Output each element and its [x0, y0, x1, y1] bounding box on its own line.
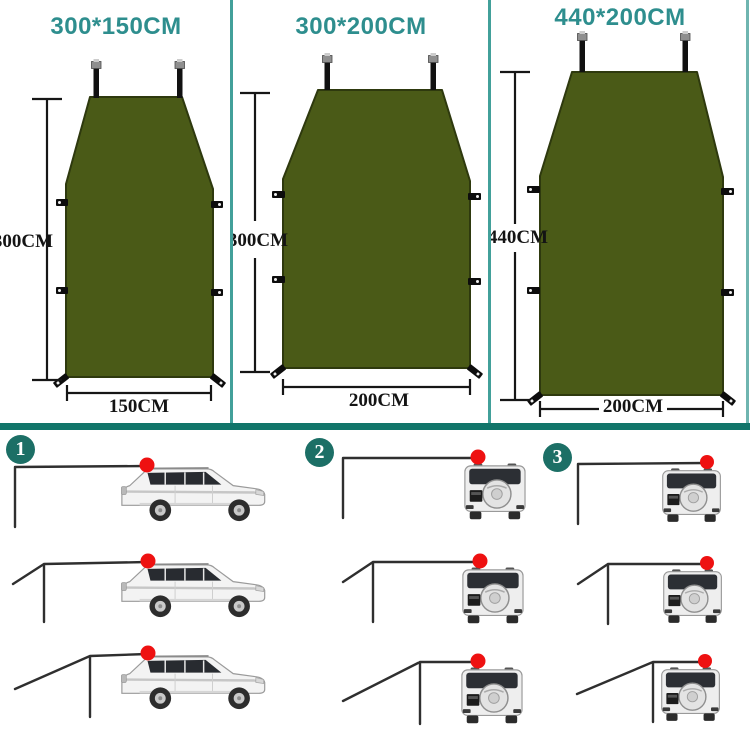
car-rear-view: [463, 567, 523, 623]
setup-scene-2a: [343, 450, 525, 520]
size-panel-440x200: 440*200CM: [490, 0, 750, 423]
tarp-product-infographic: 300*150CM: [0, 0, 750, 750]
size-panel-300x200: 300*200CM: [232, 0, 490, 423]
attachment-point-marker: [140, 458, 155, 473]
car-side-view: [121, 468, 264, 521]
attachment-point-marker: [141, 554, 156, 569]
tarp-shape: [283, 90, 470, 368]
width-dimension-label: 200CM: [349, 390, 409, 411]
setup-scene-2c: [343, 654, 522, 725]
car-side-view: [121, 656, 264, 709]
attachment-point-marker: [700, 455, 714, 469]
setup-scene-1a: [15, 458, 265, 528]
width-dimension-label: 200CM: [603, 396, 663, 417]
height-dimension-label: 300CM: [232, 230, 288, 251]
setup-scene-1c: [15, 646, 265, 718]
setup-scene-3b: [578, 556, 721, 624]
attachment-point-marker: [471, 654, 486, 669]
attachment-point-marker: [698, 654, 712, 668]
right-border-line: [746, 0, 749, 423]
setup-scenes-illustration: [0, 423, 750, 750]
car-side-view: [121, 564, 264, 617]
tent-pole-icon: [578, 31, 588, 72]
tent-pole-icon: [323, 53, 333, 90]
width-dimension-label: 150CM: [109, 396, 169, 417]
setup-scene-3a: [578, 455, 720, 524]
tent-pole-icon: [681, 31, 691, 72]
tent-pole-icon: [429, 53, 439, 90]
attachment-point-marker: [700, 556, 714, 570]
setup-scene-1b: [13, 554, 265, 623]
car-rear-view: [465, 463, 525, 519]
tarp-diagram-440x200: 440CM 200CM: [490, 0, 750, 423]
height-dimension-label: 300CM: [0, 231, 53, 252]
tent-pole-icon: [175, 59, 185, 98]
tent-pole-icon: [92, 59, 102, 98]
panel-divider: [488, 0, 491, 423]
car-rear-view: [462, 667, 522, 723]
height-dimension-label: 440CM: [490, 227, 548, 248]
attachment-point-marker: [473, 554, 488, 569]
attachment-point-marker: [141, 646, 156, 661]
tarp-diagram-300x150: 300CM 150CM: [0, 0, 232, 423]
size-panel-300x150: 300*150CM: [0, 0, 232, 423]
setup-scene-3c: [577, 654, 719, 722]
tarp-diagram-300x200: 300CM 200CM: [232, 0, 490, 423]
car-rear-view: [663, 468, 721, 521]
setup-scene-2b: [343, 554, 523, 624]
panel-divider: [230, 0, 233, 423]
car-rear-view: [664, 569, 722, 622]
attachment-point-marker: [471, 450, 486, 465]
tarp-shape: [66, 97, 213, 377]
car-rear-view: [662, 667, 720, 720]
tarp-shape: [540, 72, 723, 395]
